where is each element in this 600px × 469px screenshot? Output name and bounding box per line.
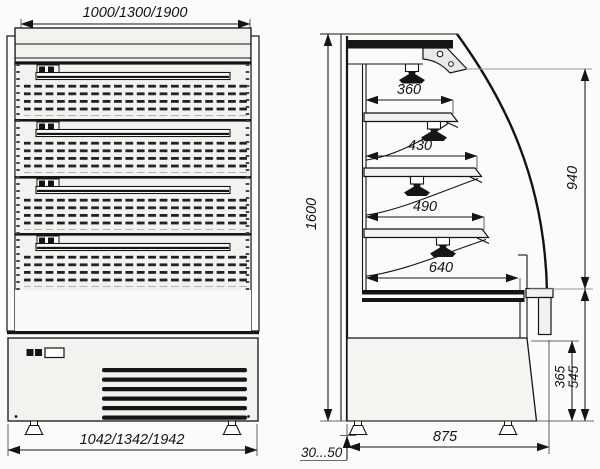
shelf-tier-2 [15,119,251,176]
front-bottom-width-dimension: 1042/1342/1942 [8,424,257,456]
front-right-side-post [251,36,259,331]
foot-adjust-label: 30...50 [301,445,343,460]
shelf-tier-4 [15,233,251,290]
front-right-foot [223,421,242,435]
bottom-deck: 640 [362,255,527,338]
shelf-1-depth-label: 360 [397,82,421,98]
side-front-foot [499,421,518,435]
curved-front-glass [457,34,547,292]
front-lower-band [7,290,259,334]
front-top-width-dimension: 1000/1300/1900 [21,5,250,29]
control-panel [45,348,64,358]
shelf-2-depth-label: 430 [408,138,432,154]
front-view: 1000/1300/1900 [7,5,259,456]
overall-height-label: 1600 [304,198,320,230]
shelf-3-support [367,240,487,277]
side-base [347,338,537,421]
base-height-label: 365 [553,365,568,388]
deck-depth-label: 640 [429,260,453,276]
glass-height-label: 940 [565,166,581,190]
front-left-foot [25,421,44,435]
front-canopy [15,28,251,62]
shelf-tier-3 [15,176,251,233]
screw-right [247,415,250,418]
front-left-side-post [7,36,15,331]
canopy-bracket [423,48,467,73]
switch-2 [35,349,42,356]
front-top-width-label: 1000/1300/1900 [83,5,188,21]
shelf-3-lamp-icon [430,238,456,258]
shelf-3: 490 [364,199,489,276]
base-height-dimension: 365 [531,341,579,421]
front-bumper [520,289,553,339]
canopy-lamp-icon [399,64,425,84]
front-bottom-width-label: 1042/1342/1942 [80,432,185,448]
side-canopy [320,34,467,73]
front-base [8,338,258,421]
side-view: 1600 360 [300,34,594,461]
side-back-foot [349,421,368,435]
screw-left [15,415,18,418]
shelf-tier-1 [15,62,251,119]
shelf-3-depth-label: 490 [413,199,437,215]
overall-height-dimension: 1600 [304,34,340,421]
bracket-hole-1 [437,51,443,57]
foot-adjust-dimension: 30...50 [300,436,356,461]
back-wall [341,34,347,421]
overall-depth-label: 875 [433,429,458,445]
shelf-2-lamp-icon [404,177,430,197]
drawing-page: 1000/1300/1900 [0,0,600,469]
refrigerated-display-case-technical-drawing: 1000/1300/1900 [0,0,600,469]
lower-front-height-label: 545 [566,365,581,388]
bracket-hole-2 [449,62,454,67]
switch-1 [27,349,34,356]
lower-front-height-dimension: 545 [566,289,585,421]
